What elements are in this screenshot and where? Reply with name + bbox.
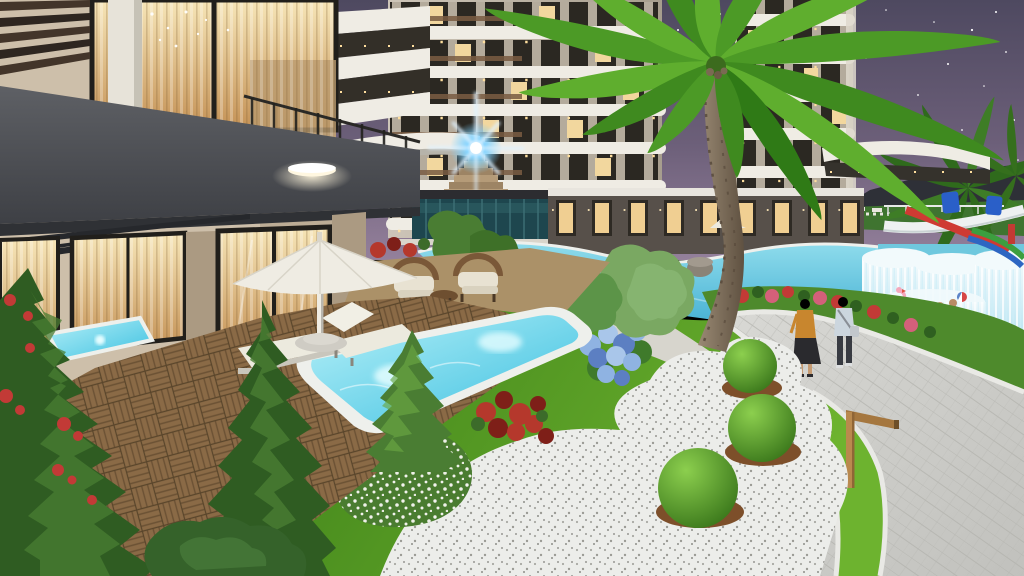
- underwater-light: [478, 332, 522, 352]
- architectural-render: [0, 0, 1024, 576]
- topiary-ball: [658, 448, 738, 528]
- slide-entry-pod: [941, 191, 960, 214]
- topiary-ball: [723, 339, 777, 393]
- topiary-ball: [728, 394, 796, 462]
- shoulder-bag: [850, 326, 859, 337]
- slide-entry-pod: [985, 195, 1003, 215]
- ceiling-lamp: [272, 160, 352, 192]
- render-canvas: [0, 0, 1024, 576]
- coconuts: [706, 68, 714, 76]
